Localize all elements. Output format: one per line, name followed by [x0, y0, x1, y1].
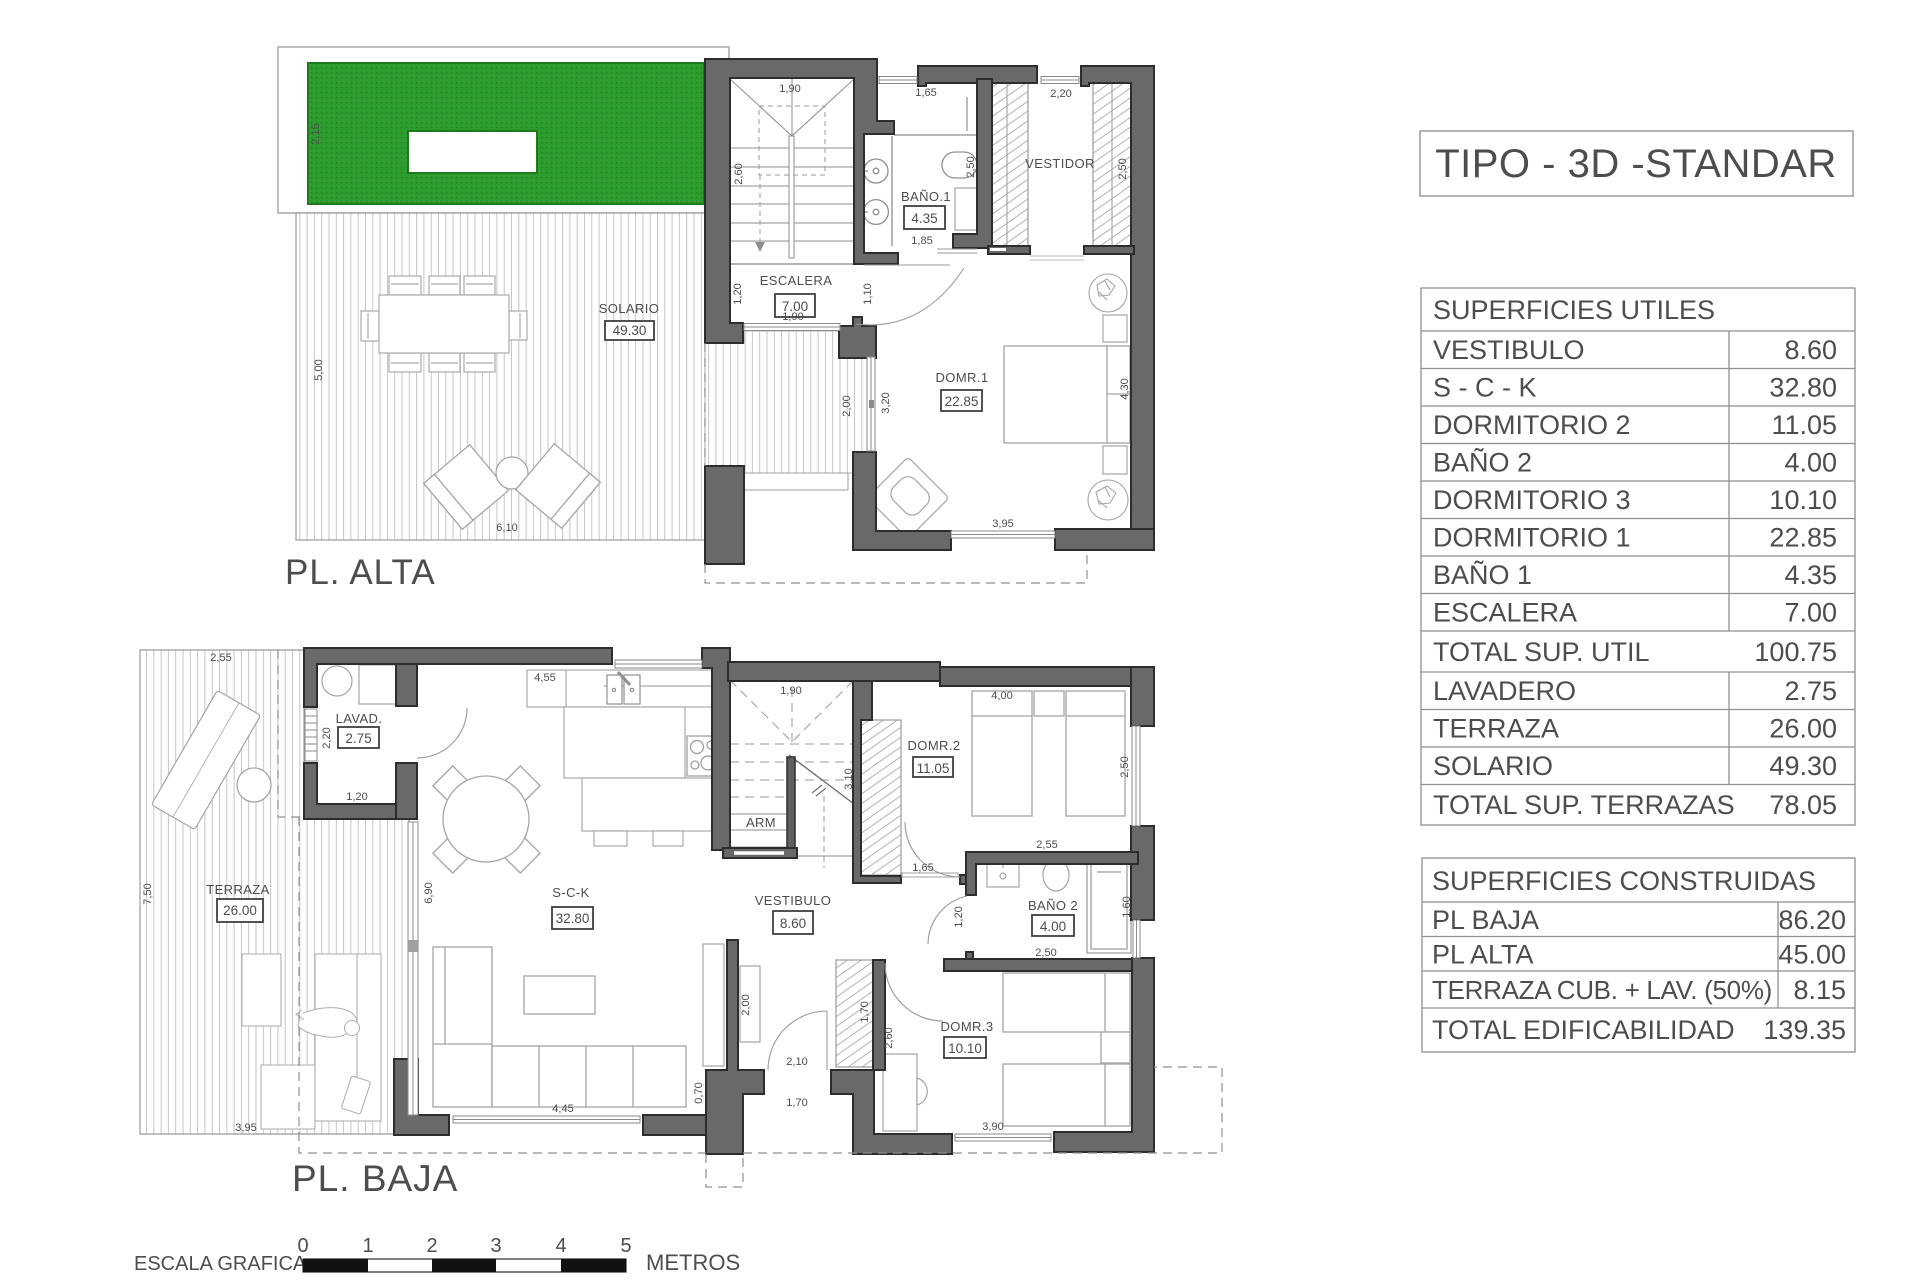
svg-text:1,65: 1,65 [912, 862, 933, 874]
svg-text:BAÑO 2: BAÑO 2 [1433, 447, 1532, 478]
svg-text:4,30: 4,30 [1119, 378, 1131, 399]
svg-text:1,90: 1,90 [779, 83, 800, 95]
svg-text:PL ALTA: PL ALTA [1432, 940, 1534, 970]
svg-text:4.35: 4.35 [1784, 560, 1837, 590]
svg-text:SOLARIO: SOLARIO [599, 301, 660, 316]
svg-text:1,65: 1,65 [915, 87, 936, 99]
svg-text:2: 2 [426, 1235, 437, 1257]
svg-text:SUPERFICIES CONSTRUIDAS: SUPERFICIES CONSTRUIDAS [1432, 866, 1816, 896]
svg-text:2,10: 2,10 [786, 1056, 807, 1068]
svg-text:METROS: METROS [646, 1250, 740, 1275]
svg-text:3,20: 3,20 [880, 392, 892, 413]
svg-text:10.10: 10.10 [1769, 485, 1837, 515]
svg-text:8.60: 8.60 [1784, 335, 1837, 365]
svg-text:10.10: 10.10 [948, 1041, 982, 1056]
svg-text:2,00: 2,00 [841, 395, 853, 416]
svg-text:TOTAL SUP. TERRAZAS: TOTAL SUP. TERRAZAS [1433, 790, 1735, 820]
svg-text:PL. ALTA: PL. ALTA [285, 553, 436, 592]
svg-text:1,70: 1,70 [859, 1001, 871, 1022]
svg-text:PL. BAJA: PL. BAJA [292, 1158, 458, 1199]
svg-text:11.05: 11.05 [917, 761, 950, 776]
svg-text:DORMITORIO 1: DORMITORIO 1 [1433, 523, 1631, 553]
svg-text:SOLARIO: SOLARIO [1433, 751, 1553, 781]
svg-text:6,10: 6,10 [496, 522, 517, 534]
svg-text:PL BAJA: PL BAJA [1432, 905, 1539, 935]
svg-text:32.80: 32.80 [1769, 373, 1837, 403]
svg-text:VESTIBULO: VESTIBULO [755, 893, 832, 908]
svg-text:45.00: 45.00 [1778, 940, 1846, 970]
svg-text:5,00: 5,00 [313, 359, 325, 380]
svg-text:TERRAZA CUB. + LAV. (50%): TERRAZA CUB. + LAV. (50%) [1432, 975, 1772, 1005]
svg-text:2,55: 2,55 [210, 652, 231, 664]
svg-text:DORMITORIO 2: DORMITORIO 2 [1433, 410, 1631, 440]
svg-text:3,95: 3,95 [992, 518, 1013, 530]
svg-text:TOTAL SUP. UTIL: TOTAL SUP. UTIL [1433, 637, 1650, 667]
svg-text:26.00: 26.00 [223, 903, 257, 918]
svg-text:2,50: 2,50 [1117, 158, 1129, 179]
svg-text:TERRAZA: TERRAZA [206, 882, 269, 897]
svg-text:4.35: 4.35 [911, 211, 937, 226]
svg-text:2,50: 2,50 [965, 156, 977, 177]
svg-text:11.05: 11.05 [1771, 410, 1837, 440]
svg-text:49.30: 49.30 [613, 323, 647, 338]
svg-text:3,90: 3,90 [982, 1121, 1003, 1133]
svg-text:BAÑO 1: BAÑO 1 [1433, 559, 1532, 590]
svg-text:139.35: 139.35 [1763, 1015, 1846, 1045]
svg-text:LAVAD.: LAVAD. [336, 711, 383, 726]
svg-text:2.75: 2.75 [1784, 676, 1837, 706]
svg-text:4.00: 4.00 [1040, 919, 1066, 934]
svg-text:BAÑO 2: BAÑO 2 [1028, 898, 1078, 913]
svg-text:1: 1 [362, 1235, 373, 1257]
svg-text:ARM: ARM [746, 815, 776, 830]
svg-text:2,60: 2,60 [733, 163, 745, 184]
svg-text:22.85: 22.85 [1769, 523, 1837, 553]
svg-text:1,10: 1,10 [862, 283, 874, 304]
svg-text:TERRAZA: TERRAZA [1433, 714, 1559, 744]
svg-text:0: 0 [297, 1235, 308, 1257]
svg-text:2.75: 2.75 [345, 731, 371, 746]
svg-text:ESCALA GRAFICA :: ESCALA GRAFICA : [134, 1253, 316, 1275]
svg-text:7.00: 7.00 [1784, 598, 1837, 628]
svg-text:2,50: 2,50 [1035, 947, 1056, 959]
svg-text:0,70: 0,70 [693, 1082, 705, 1103]
svg-text:ESCALERA: ESCALERA [760, 273, 833, 288]
svg-text:2,55: 2,55 [1036, 839, 1057, 851]
svg-text:VESTIDOR: VESTIDOR [1025, 156, 1095, 171]
svg-text:S - C - K: S - C - K [1433, 373, 1537, 403]
svg-text:1,20: 1,20 [732, 283, 744, 304]
svg-text:1,60: 1,60 [1121, 896, 1133, 917]
svg-text:DOMR.3: DOMR.3 [941, 1019, 994, 1034]
svg-text:BAÑO.1: BAÑO.1 [901, 189, 951, 204]
svg-text:3: 3 [490, 1235, 501, 1257]
svg-text:1,90: 1,90 [782, 311, 803, 323]
svg-text:6,90: 6,90 [423, 882, 435, 903]
svg-text:S-C-K: S-C-K [552, 885, 589, 900]
svg-text:4.00: 4.00 [1784, 448, 1837, 478]
svg-text:VESTIBULO: VESTIBULO [1433, 335, 1585, 365]
svg-text:1,85: 1,85 [911, 235, 932, 247]
svg-text:2,50: 2,50 [1119, 756, 1131, 777]
svg-text:TOTAL EDIFICABILIDAD: TOTAL EDIFICABILIDAD [1432, 1015, 1735, 1045]
svg-text:1,90: 1,90 [780, 685, 801, 697]
svg-text:8.60: 8.60 [780, 916, 806, 931]
svg-text:1,20: 1,20 [346, 791, 367, 803]
svg-text:ESCALERA: ESCALERA [1433, 598, 1577, 628]
svg-text:100.75: 100.75 [1754, 637, 1837, 667]
svg-text:DORMITORIO 3: DORMITORIO 3 [1433, 485, 1631, 515]
svg-text:SUPERFICIES UTILES: SUPERFICIES UTILES [1433, 295, 1715, 325]
svg-text:3,95: 3,95 [235, 1122, 256, 1134]
svg-text:32.80: 32.80 [556, 911, 590, 926]
svg-text:4,55: 4,55 [534, 672, 555, 684]
svg-text:4,00: 4,00 [991, 690, 1012, 702]
svg-text:8.15: 8.15 [1793, 975, 1846, 1005]
svg-text:DOMR.1: DOMR.1 [936, 370, 989, 385]
svg-text:7,50: 7,50 [142, 883, 154, 904]
svg-text:86.20: 86.20 [1778, 905, 1846, 935]
svg-text:4,45: 4,45 [552, 1103, 573, 1115]
svg-text:1,70: 1,70 [786, 1097, 807, 1109]
svg-text:DOMR.2: DOMR.2 [908, 738, 961, 753]
svg-text:22.85: 22.85 [945, 394, 979, 409]
svg-text:2,60: 2,60 [883, 1027, 895, 1048]
svg-text:4: 4 [555, 1235, 566, 1257]
svg-text:26.00: 26.00 [1769, 714, 1837, 744]
svg-text:3,10: 3,10 [843, 768, 855, 789]
svg-text:49.30: 49.30 [1769, 751, 1837, 781]
svg-text:5: 5 [620, 1235, 631, 1257]
svg-text:2,20: 2,20 [1050, 88, 1071, 100]
svg-text:2,00: 2,00 [740, 994, 752, 1015]
svg-text:LAVADERO: LAVADERO [1433, 676, 1576, 706]
svg-text:78.05: 78.05 [1769, 790, 1837, 820]
svg-text:TIPO - 3D -STANDAR: TIPO - 3D -STANDAR [1435, 142, 1837, 186]
svg-text:1,20: 1,20 [953, 906, 965, 927]
svg-text:2,15: 2,15 [310, 123, 322, 144]
svg-text:2,20: 2,20 [321, 727, 333, 748]
